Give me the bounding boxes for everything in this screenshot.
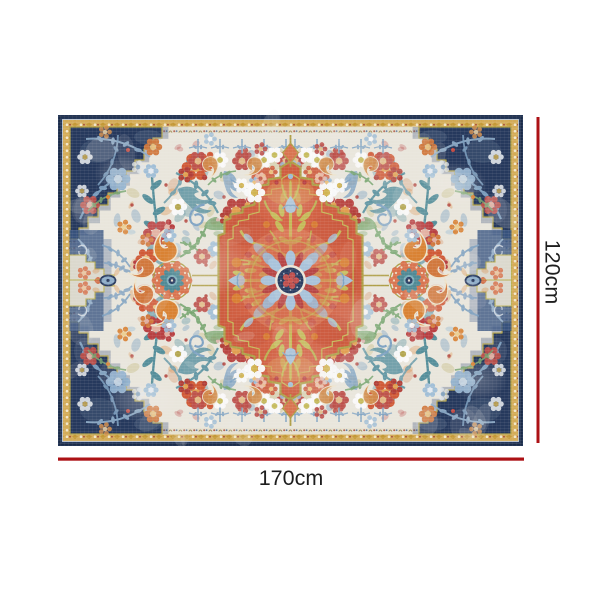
svg-text:120cm: 120cm: [541, 240, 565, 305]
svg-text:170cm: 170cm: [259, 466, 324, 490]
